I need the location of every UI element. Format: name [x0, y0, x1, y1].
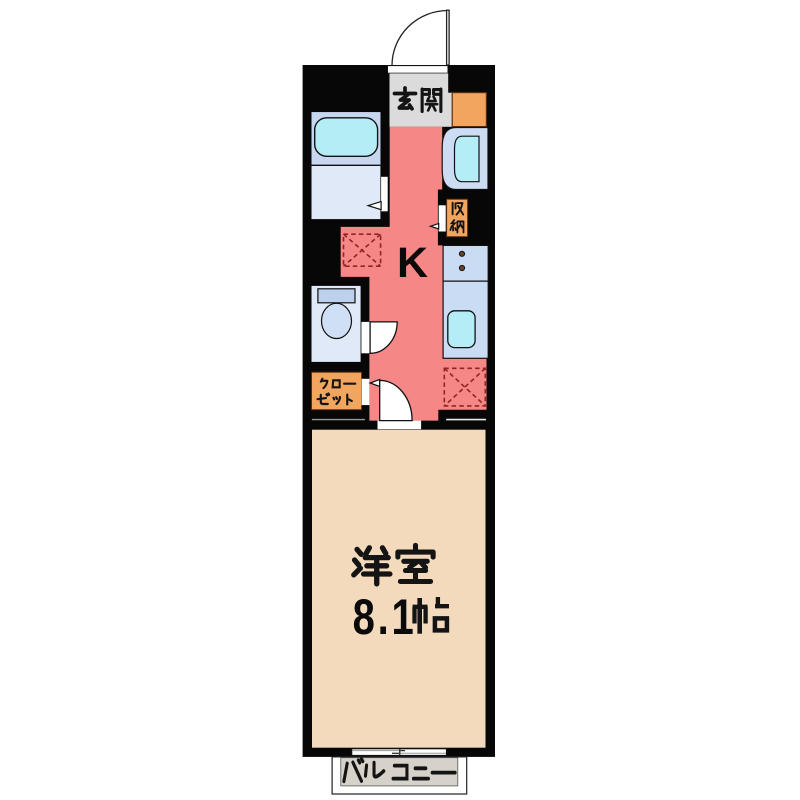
svg-text:K: K	[397, 239, 428, 287]
svg-text:8.1: 8.1	[353, 589, 417, 645]
